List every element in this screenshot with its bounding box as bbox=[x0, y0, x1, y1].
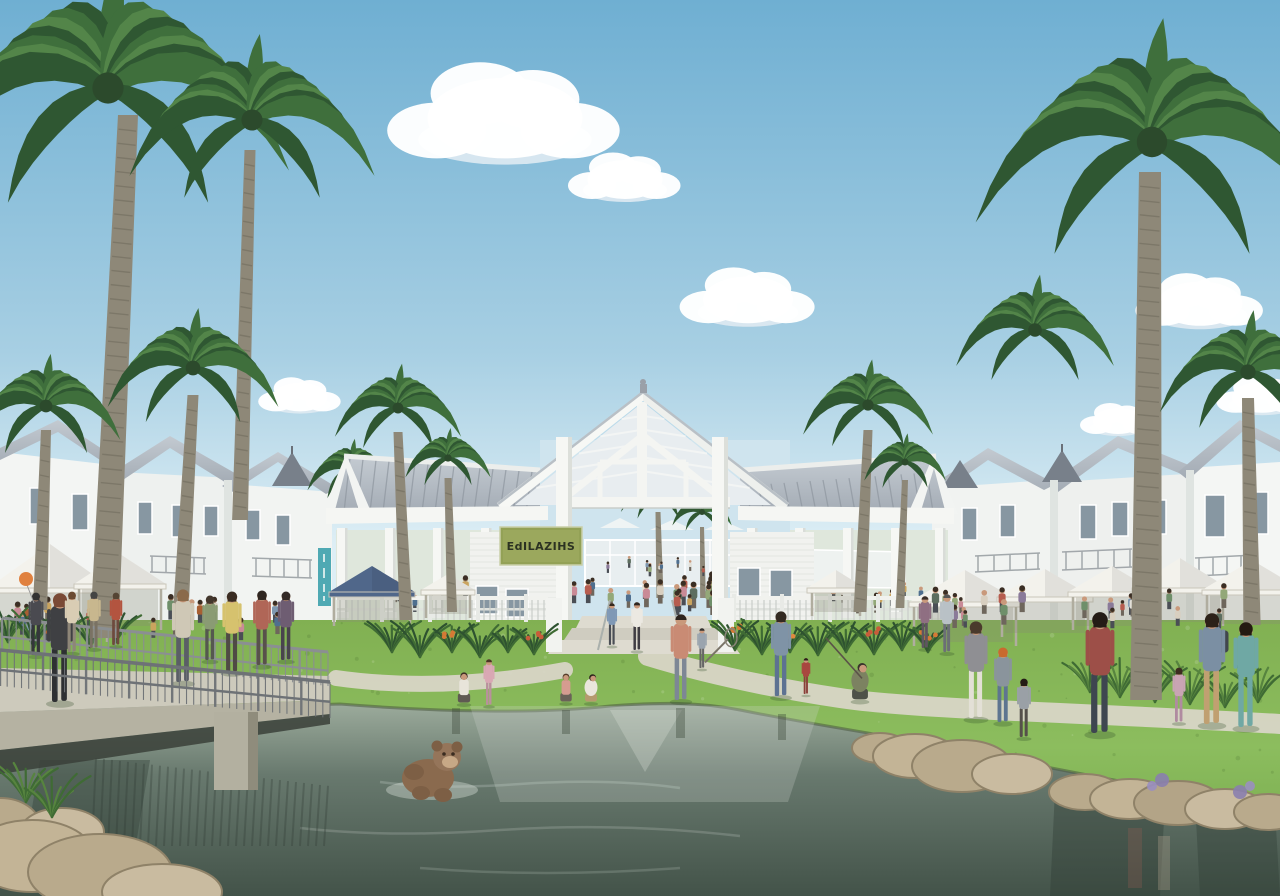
pavilion-sign: EdILAZIHS bbox=[500, 527, 582, 565]
architectural-rendering: EdILAZIHS bbox=[0, 0, 1280, 896]
roof-finial bbox=[640, 384, 647, 393]
scene-canvas: EdILAZIHS bbox=[0, 0, 1280, 896]
sign-text: EdILAZIHS bbox=[507, 540, 576, 553]
wall-right-of-opening bbox=[730, 532, 814, 620]
